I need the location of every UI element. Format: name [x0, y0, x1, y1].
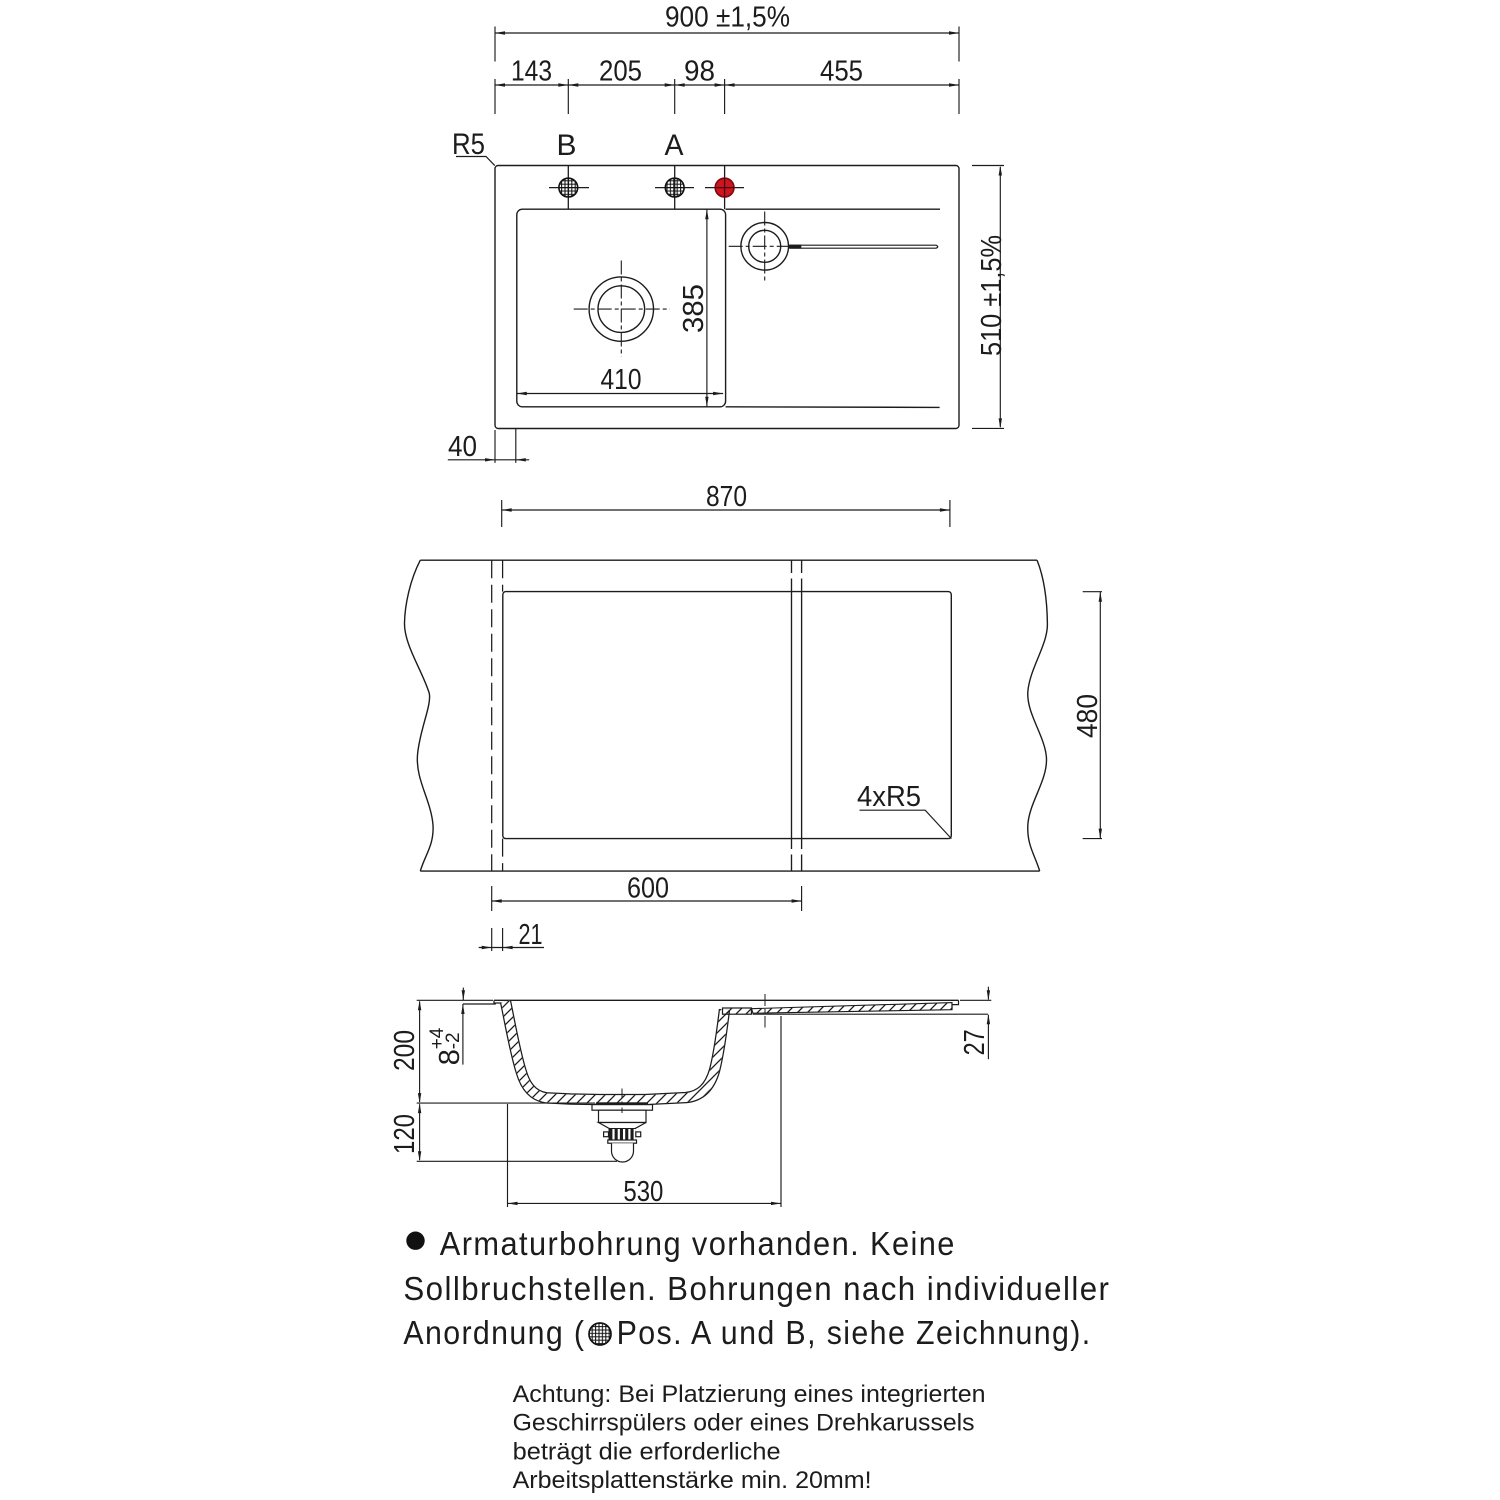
svg-text:385: 385: [678, 284, 710, 333]
svg-text:B: B: [557, 129, 577, 162]
svg-text:4xR5: 4xR5: [857, 781, 921, 813]
svg-text:530: 530: [623, 1176, 663, 1208]
svg-text:-2: -2: [443, 1032, 464, 1049]
svg-text:410: 410: [601, 364, 642, 396]
svg-text:8: 8: [434, 1049, 466, 1065]
svg-text:600: 600: [627, 873, 669, 905]
svg-text:205: 205: [599, 56, 642, 88]
svg-text:143: 143: [511, 56, 552, 88]
svg-text:200: 200: [389, 1030, 421, 1071]
svg-text:Arbeitsplattenstärke min. 20mm: Arbeitsplattenstärke min. 20mm!: [513, 1467, 872, 1494]
svg-text:Sollbruchstellen. Bohrungen na: Sollbruchstellen. Bohrungen nach individ…: [403, 1270, 1110, 1307]
svg-text:Pos. A und B, siehe Zeichnung): Pos. A und B, siehe Zeichnung).: [617, 1314, 1092, 1351]
svg-text:120: 120: [389, 1114, 421, 1154]
svg-text:480: 480: [1072, 694, 1104, 738]
svg-text:21: 21: [519, 919, 543, 951]
svg-text:Anordnung (: Anordnung (: [403, 1314, 585, 1351]
svg-text:510 ±1,5%: 510 ±1,5%: [976, 235, 1008, 356]
svg-text:40: 40: [448, 431, 477, 463]
svg-text:27: 27: [959, 1029, 991, 1055]
svg-text:900 ±1,5%: 900 ±1,5%: [665, 2, 790, 34]
svg-text:A: A: [665, 129, 684, 162]
svg-text:beträgt die erforderliche: beträgt die erforderliche: [513, 1438, 781, 1465]
svg-text:Armaturbohrung vorhanden. Kein: Armaturbohrung vorhanden. Keine: [440, 1225, 956, 1262]
svg-text:Achtung: Bei Platzierung eines: Achtung: Bei Platzierung eines integrier…: [513, 1381, 986, 1408]
svg-text:870: 870: [706, 481, 747, 513]
svg-text:455: 455: [820, 56, 863, 88]
svg-text:98: 98: [684, 56, 715, 88]
svg-text:Geschirrspülers oder eines Dre: Geschirrspülers oder eines Drehkarussels: [513, 1410, 975, 1437]
